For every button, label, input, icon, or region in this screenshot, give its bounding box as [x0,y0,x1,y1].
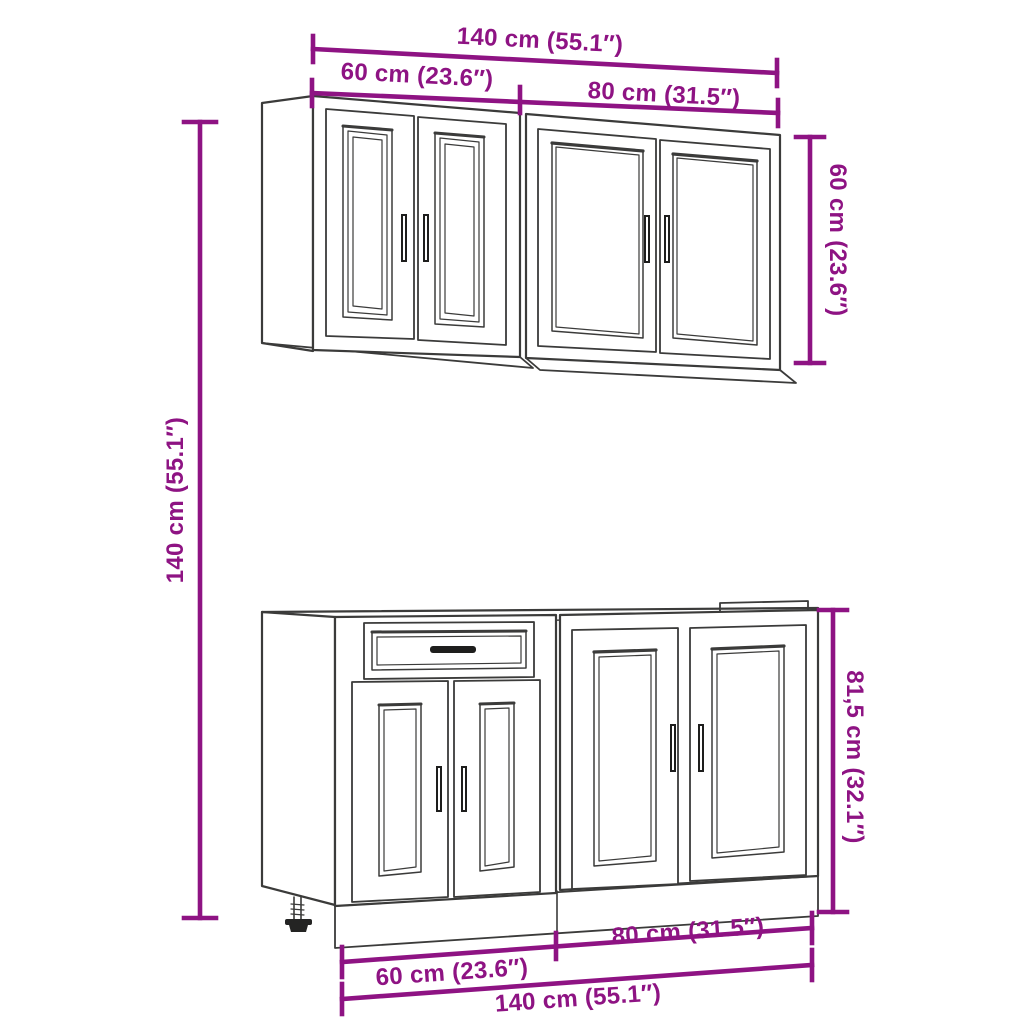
base-side-panel [262,612,335,905]
base-cabinet-80 [560,610,818,890]
base-80-door-right [690,625,806,881]
dimension-diagram: 140 cm (55.1″) 60 cm (23.6″) 80 cm (31.5… [0,0,1024,1024]
base-cabinet-60 [335,615,556,906]
wall-cabinet-80 [526,114,780,370]
wall-cabinet-60 [313,96,520,357]
base-60-drawer [364,622,534,679]
dim-label-wall-cabinet-height: 60 cm (23.6″) [823,164,851,317]
cabinet-line-drawing [0,0,1024,1024]
dim-label-overall-height: 140 cm (55.1″) [162,417,190,583]
dim-label-base-cabinet-height: 81,5 cm (32.1″) [840,670,868,843]
wall-60-door-left [326,109,414,339]
dim-line-wall-height [796,137,824,363]
wall-cabinet-unit [262,96,796,383]
adjustable-foot-icon [285,897,312,932]
base-cabinet-unit [262,601,818,948]
wall-side-panel [262,96,313,351]
wall-60-door-right [418,117,506,345]
base-80-door-left [572,628,678,889]
